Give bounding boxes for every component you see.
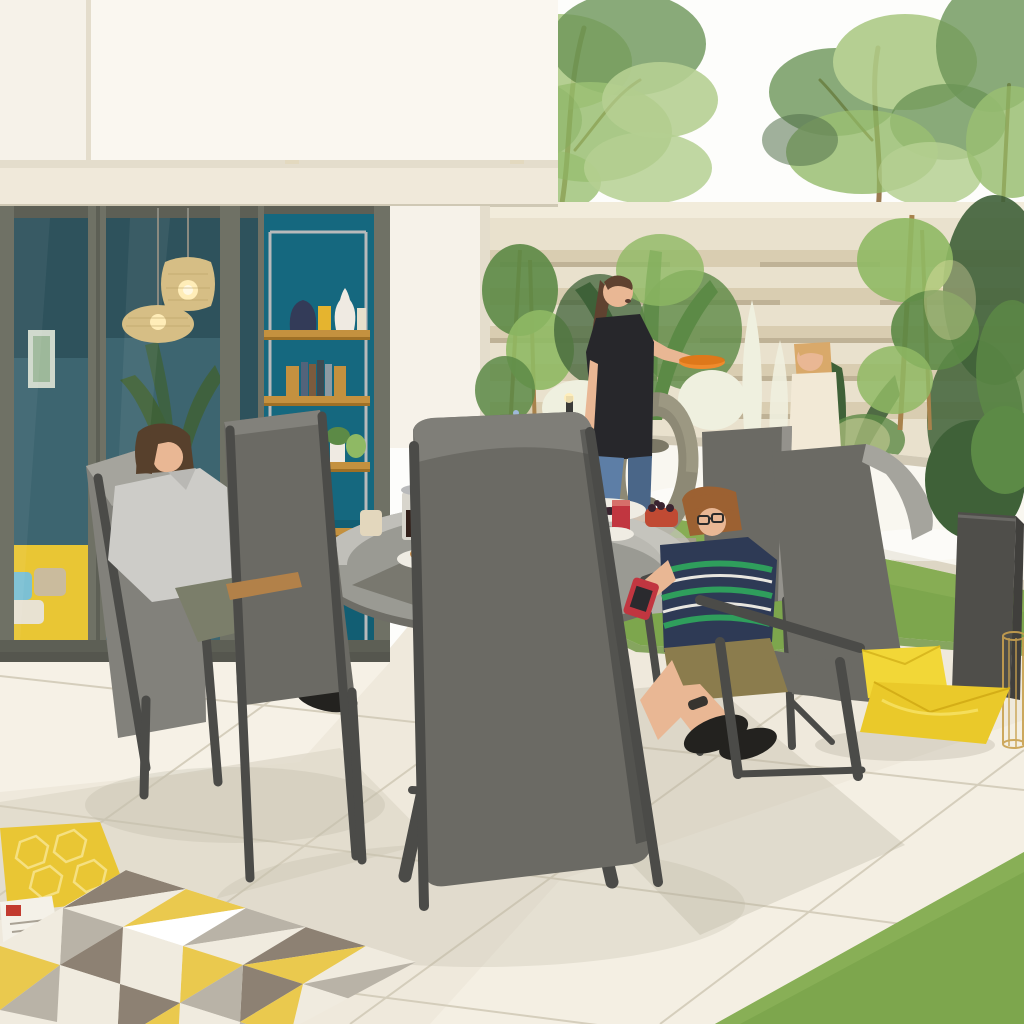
plant-pot [330,442,345,462]
bookend [286,366,299,396]
patio-garden-photo [0,0,1024,1024]
downlight [285,160,299,164]
downlight [510,160,524,164]
overhang [88,0,558,162]
fascia [0,168,558,206]
planter-body [952,512,1016,698]
beige-cushion [34,568,66,596]
beige-pot [360,510,382,536]
corner-pillar [390,206,490,448]
scene-canvas [0,0,1024,1024]
bookend [334,366,346,396]
yellow-candle [318,306,331,330]
cream-candle [357,308,366,330]
uplight-glow [924,260,976,340]
